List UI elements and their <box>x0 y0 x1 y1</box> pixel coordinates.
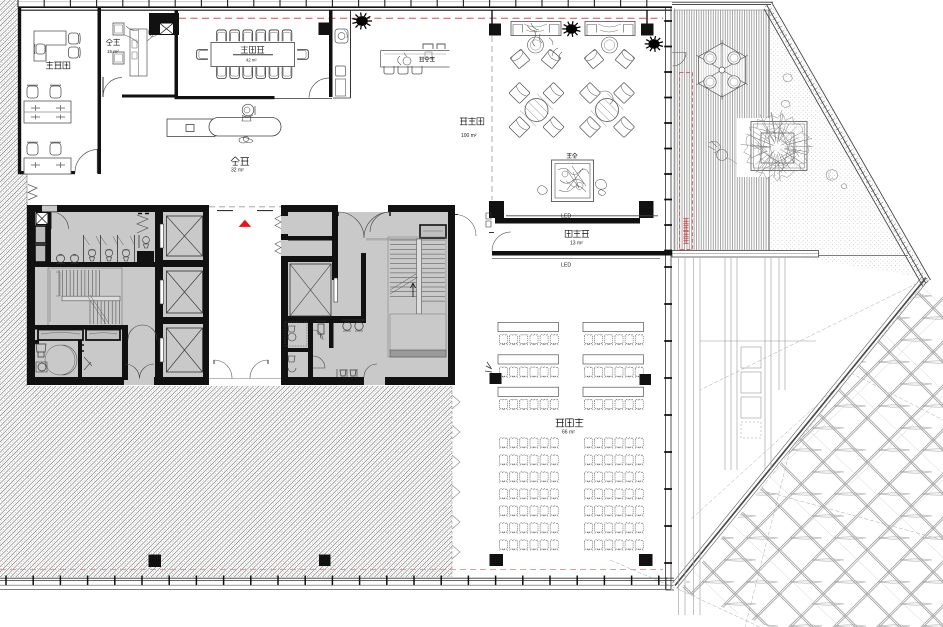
svg-text:13 m²: 13 m² <box>570 241 583 247</box>
svg-text:15 m²: 15 m² <box>107 49 119 54</box>
svg-text:LED: LED <box>561 263 571 269</box>
svg-text:100 m²: 100 m² <box>461 133 477 139</box>
svg-text:42 m²: 42 m² <box>246 58 257 63</box>
svg-text:66 m²: 66 m² <box>562 430 575 436</box>
svg-text:32 m²: 32 m² <box>231 168 244 174</box>
